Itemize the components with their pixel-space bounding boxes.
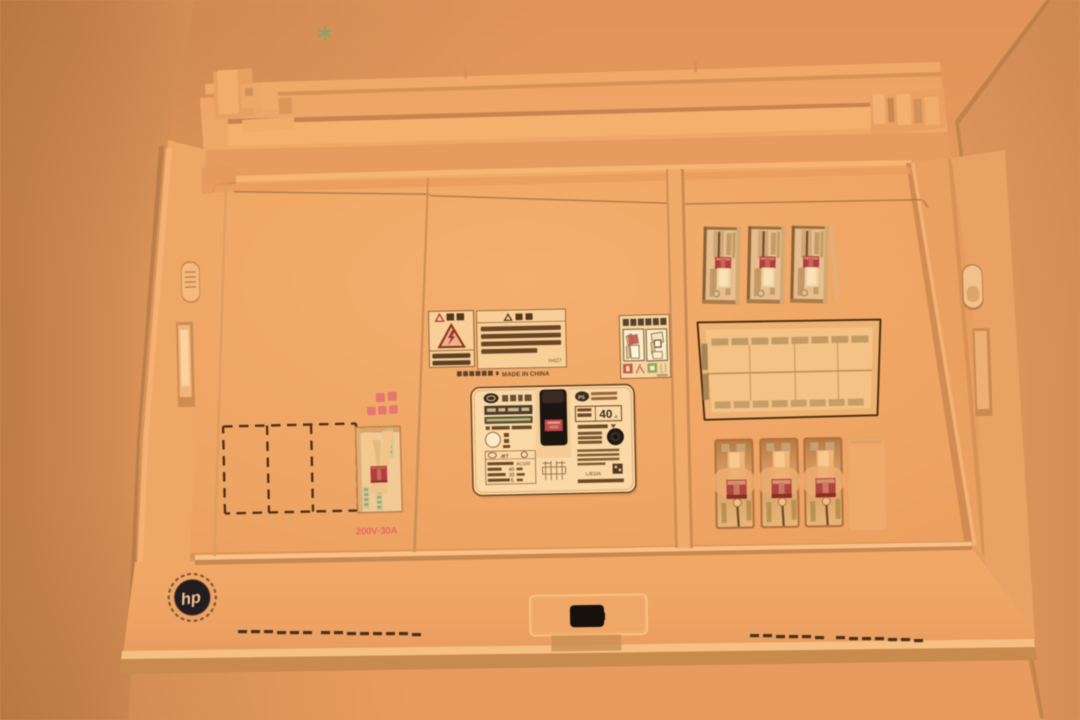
svg-text:H427: H427 <box>548 358 561 364</box>
svg-text:PS: PS <box>578 395 585 401</box>
svg-text:hp: hp <box>181 587 202 609</box>
svg-text:AC100: AC100 <box>516 461 530 466</box>
svg-text:5: 5 <box>511 478 514 484</box>
svg-text:40: 40 <box>599 409 612 421</box>
svg-text:MADE IN CHINA: MADE IN CHINA <box>502 370 550 378</box>
svg-text:200V·30A: 200V·30A <box>356 525 398 537</box>
svg-text:LJE226: LJE226 <box>586 471 602 476</box>
svg-text:JET: JET <box>500 453 510 458</box>
svg-text:A: A <box>614 414 617 419</box>
